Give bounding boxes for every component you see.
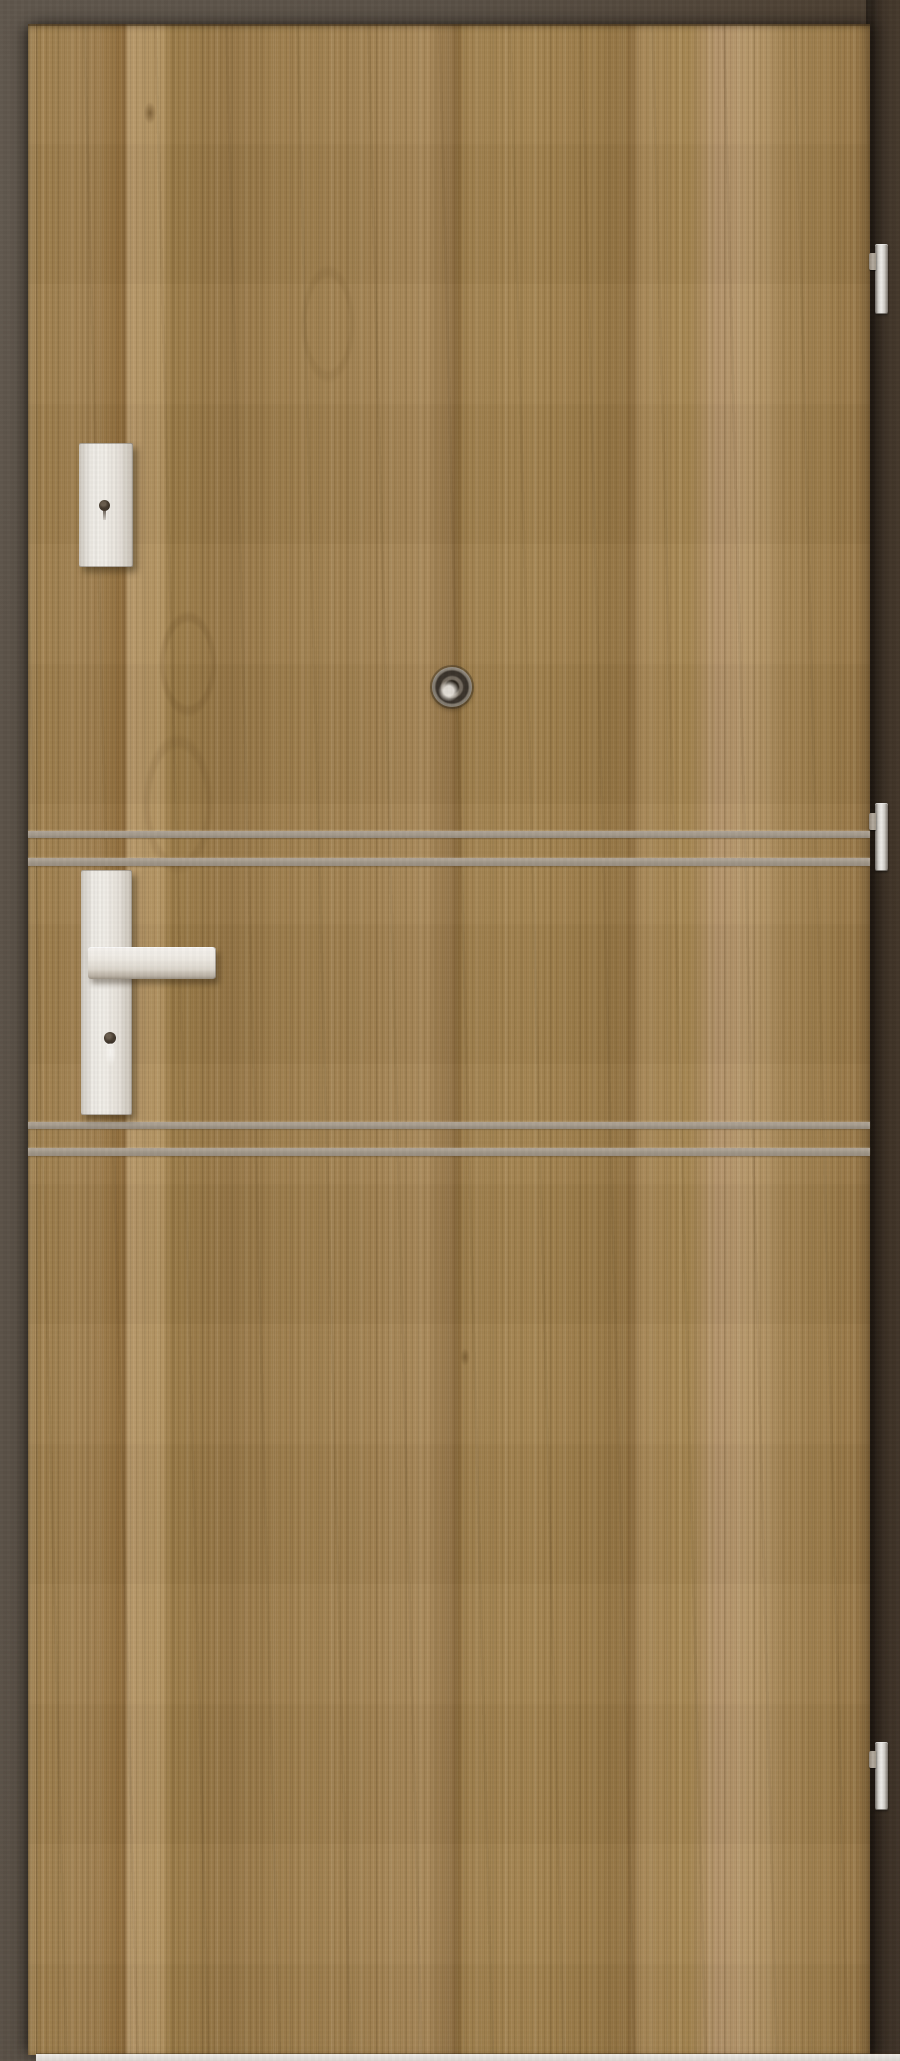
handle-backplate (81, 870, 132, 1115)
hinge-top (875, 244, 888, 314)
hinge-pin (869, 1751, 876, 1768)
inlay-strip-lower-2 (28, 1148, 870, 1156)
inlay-strip-upper-1 (28, 831, 870, 838)
door-product-photo (0, 0, 900, 2061)
door-leaf (28, 24, 870, 2055)
hinge-pin (869, 813, 876, 830)
inlay-strip-upper-2 (28, 858, 870, 866)
floor-line (36, 2054, 900, 2061)
peephole-icon (432, 667, 472, 707)
upper-keyhole-slot (103, 510, 106, 520)
key-cylinder-highlight (105, 1043, 116, 1066)
hinge-middle (875, 803, 888, 871)
lever-handle (88, 947, 216, 979)
inlay-strip-lower-1 (28, 1122, 870, 1129)
hinge-bottom (875, 1742, 888, 1810)
hinge-pin (869, 253, 876, 270)
upper-lock-plate (79, 443, 133, 567)
